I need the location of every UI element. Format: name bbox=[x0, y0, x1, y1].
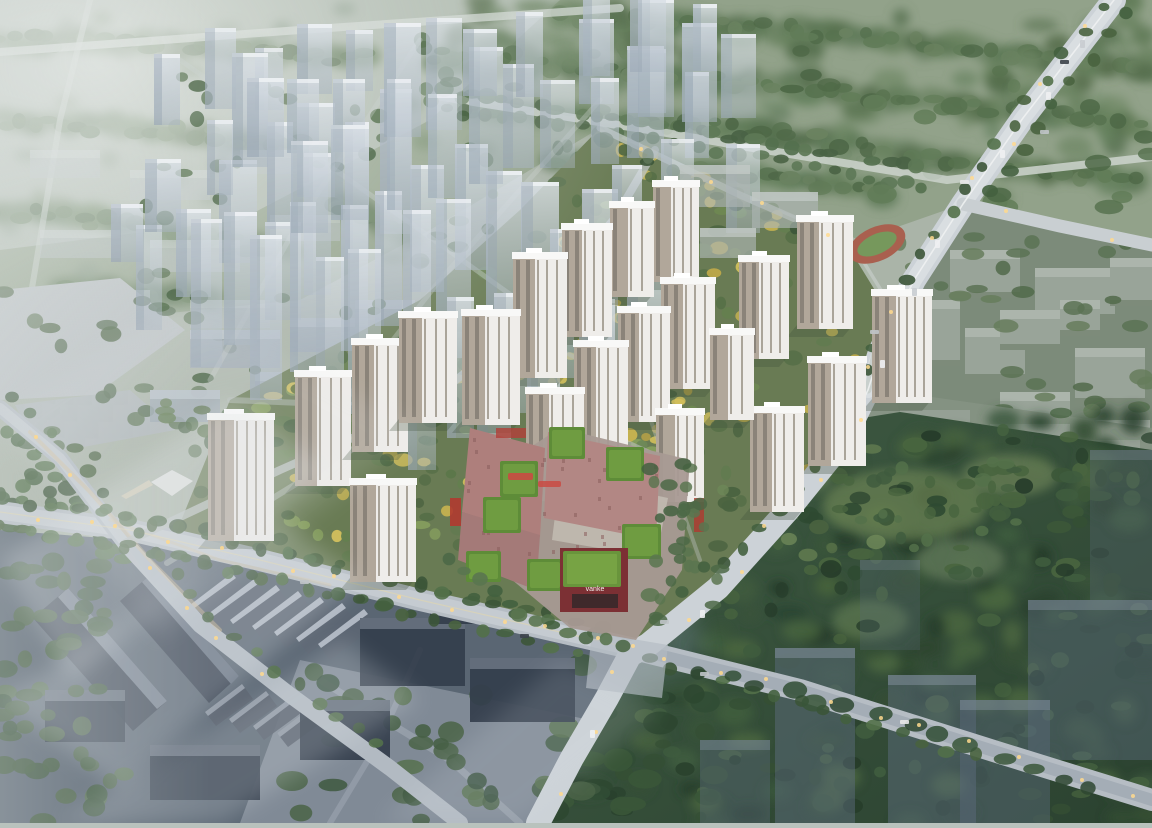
svg-text:vanke: vanke bbox=[586, 586, 605, 593]
